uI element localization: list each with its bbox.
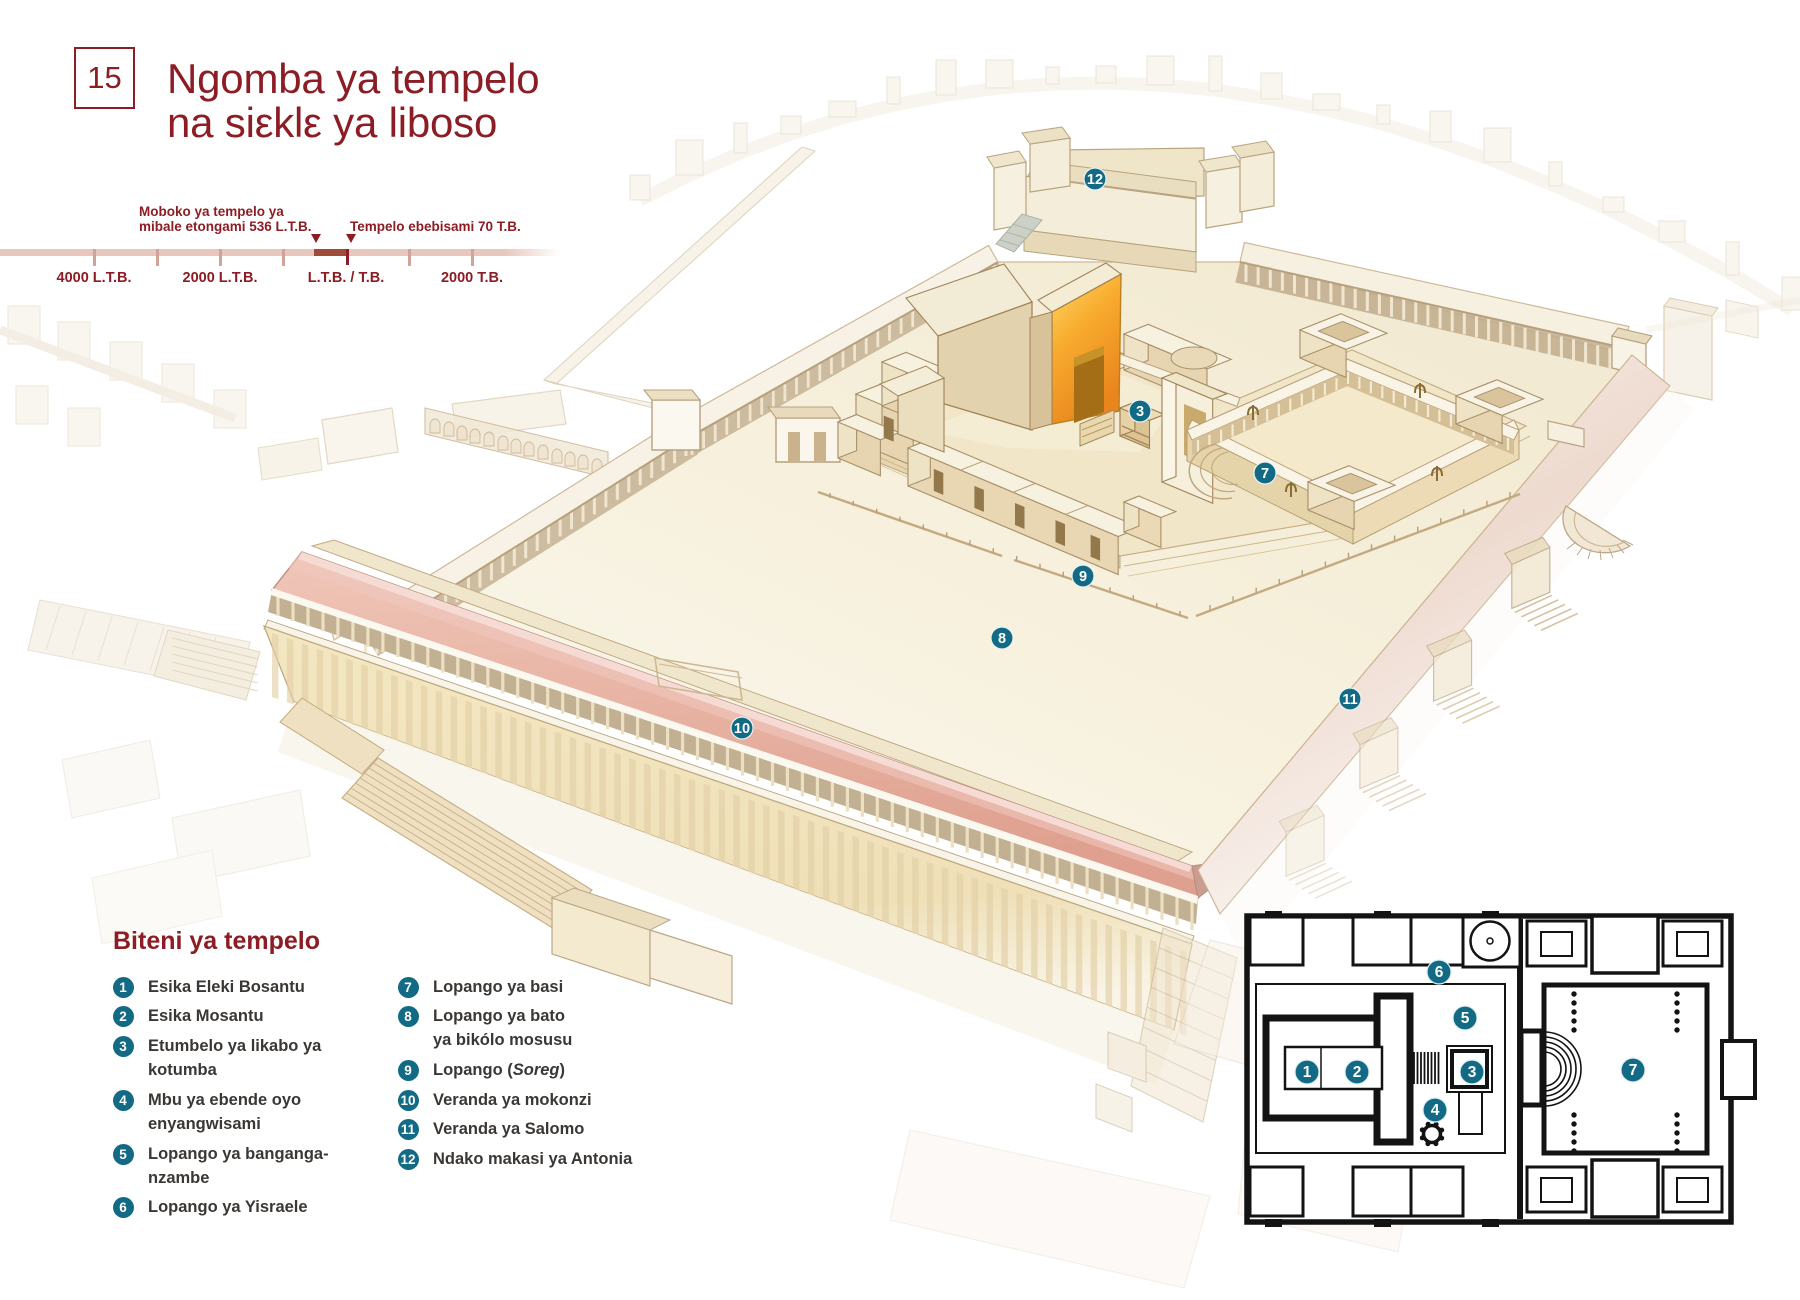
svg-text:7: 7 xyxy=(1261,466,1269,482)
svg-text:3: 3 xyxy=(1468,1064,1477,1081)
svg-text:9: 9 xyxy=(1079,569,1087,585)
svg-text:6: 6 xyxy=(1435,964,1444,981)
svg-text:4: 4 xyxy=(1431,1102,1440,1119)
svg-text:10: 10 xyxy=(734,721,750,737)
svg-text:3: 3 xyxy=(1136,404,1144,420)
svg-text:2: 2 xyxy=(1353,1064,1362,1081)
svg-text:7: 7 xyxy=(1629,1062,1638,1079)
svg-text:12: 12 xyxy=(1087,172,1103,188)
svg-text:11: 11 xyxy=(1342,692,1357,708)
svg-text:8: 8 xyxy=(998,631,1006,647)
svg-text:5: 5 xyxy=(1461,1010,1470,1027)
svg-text:1: 1 xyxy=(1303,1064,1312,1081)
